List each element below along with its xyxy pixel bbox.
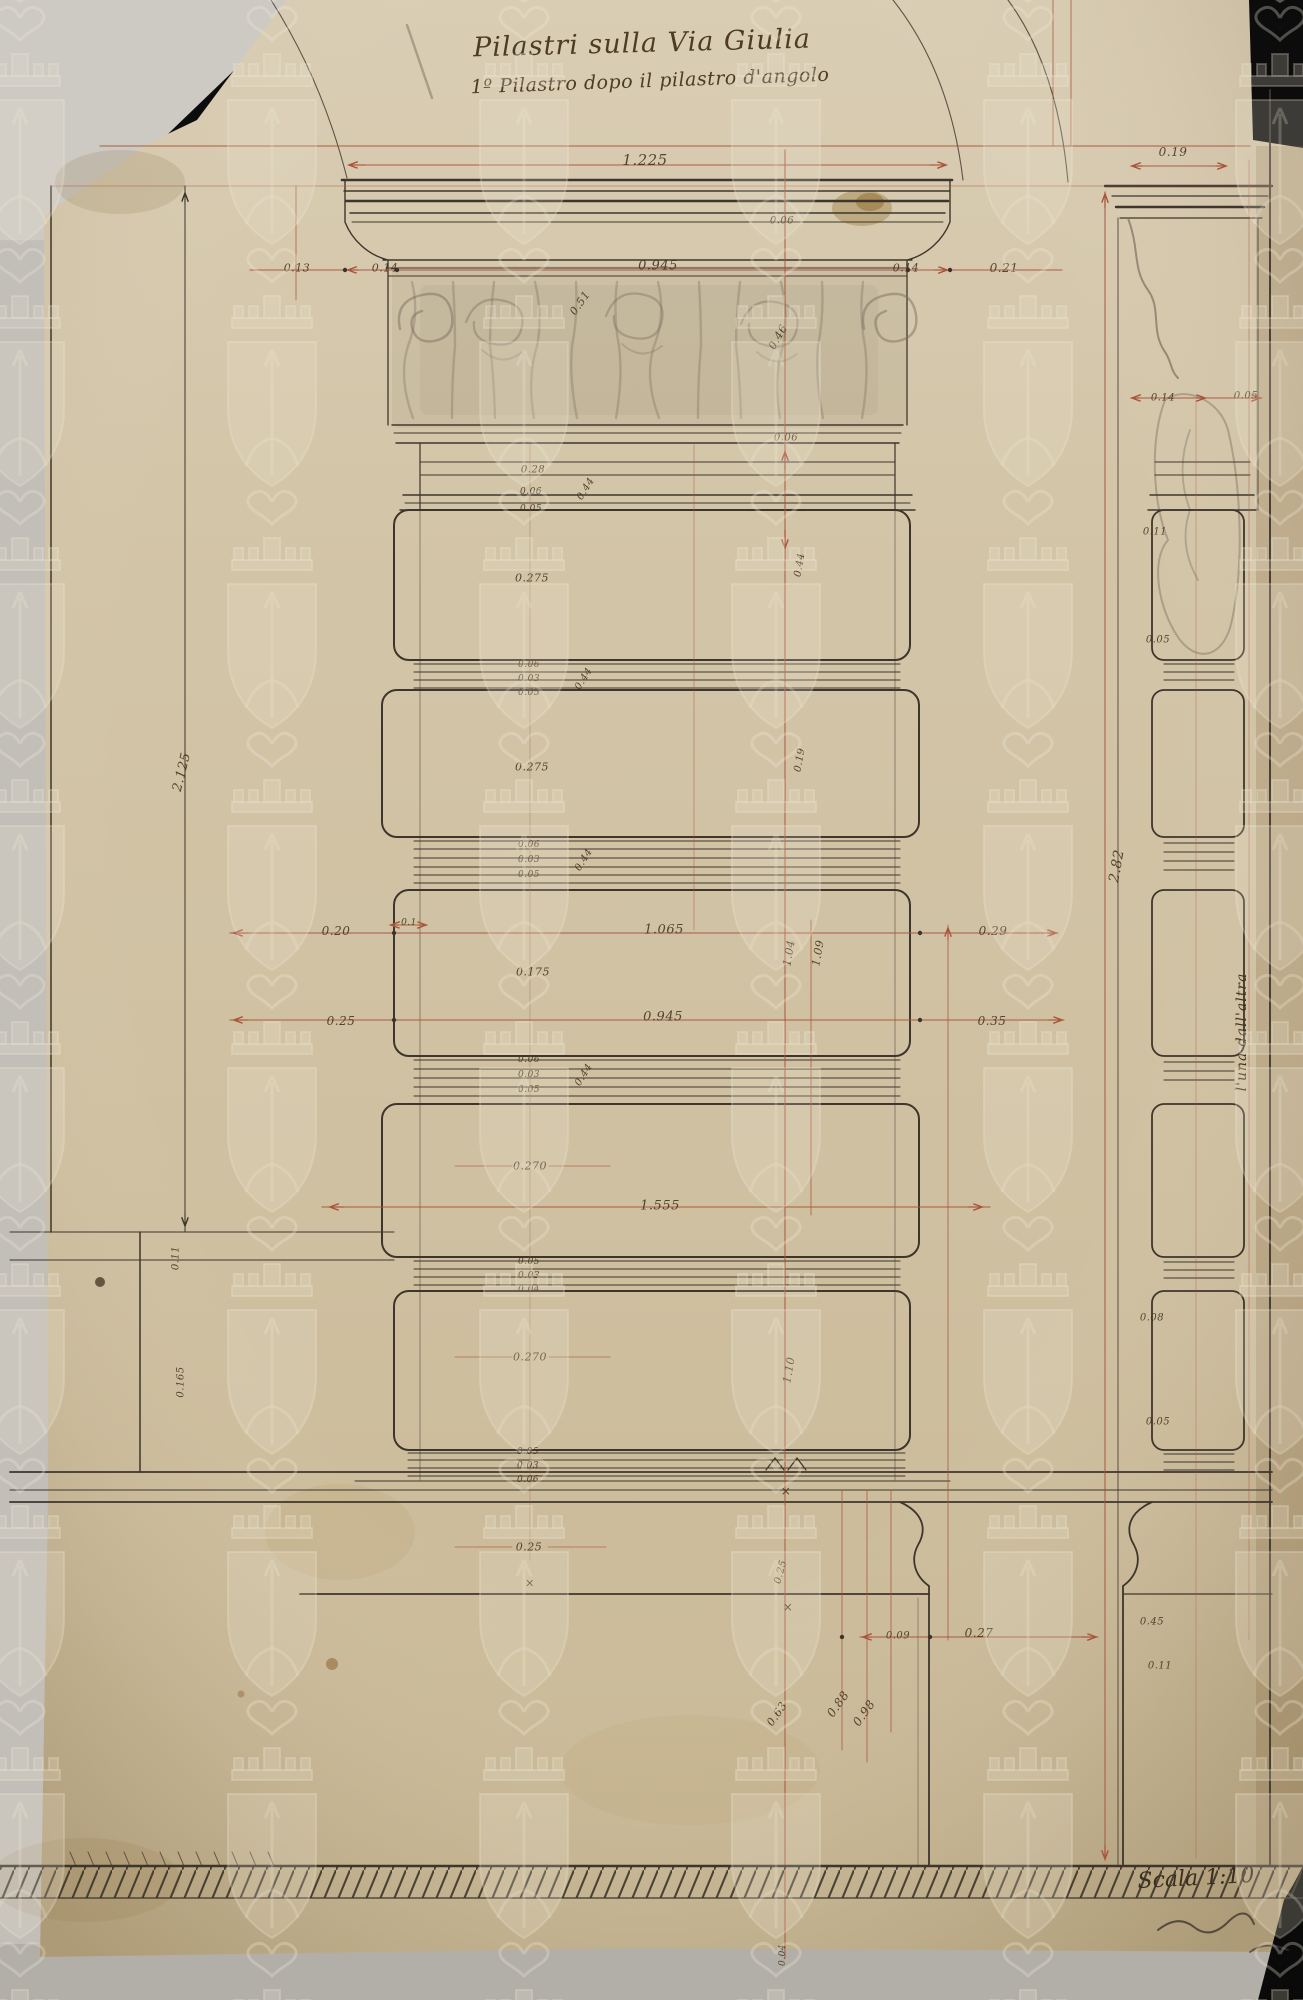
drawing-sheet [0, 0, 1303, 2000]
archival-photo-of-architectural-drawing: Pilastri sulla Via Giulia 1º Pilastro do… [0, 0, 1303, 2000]
